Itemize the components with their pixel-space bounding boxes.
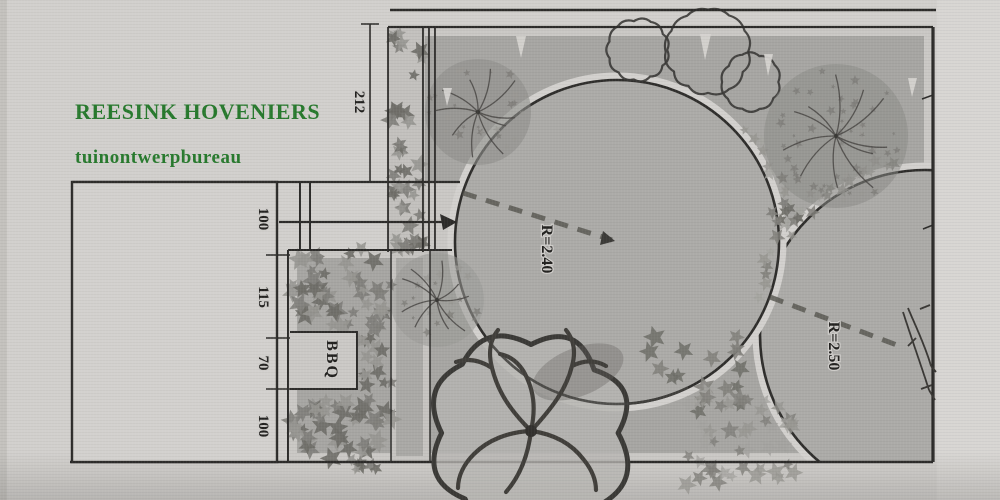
garden-plan-scan: 212 100 115 70 100 BBQ R=2.40 R=2.50 REE…	[0, 0, 1000, 500]
garden-plan-drawing: 212 100 115 70 100 BBQ R=2.40 R=2.50 REE…	[0, 0, 1000, 500]
scan-noise-overlay	[0, 0, 1000, 500]
